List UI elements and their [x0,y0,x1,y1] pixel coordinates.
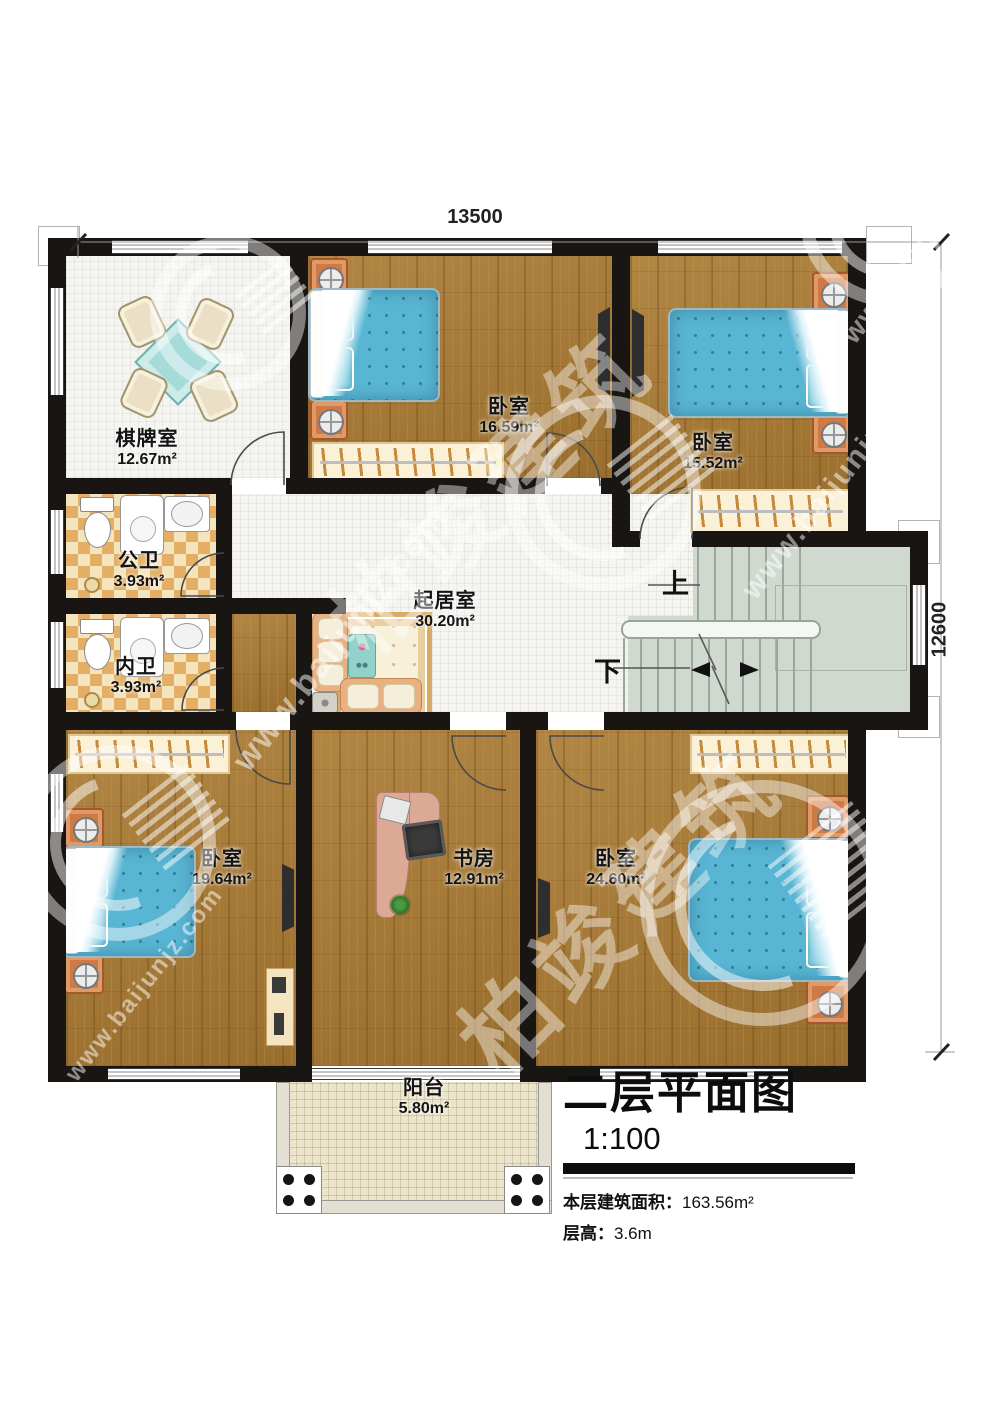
stair-down-label: 下 [594,650,621,689]
title-underline [563,1163,855,1174]
dimension-lines [71,226,955,1060]
floor-plan: 棋牌室12.67m² 卧室16.59m² 卧室15.52m² 公卫3.93m² … [0,0,1000,1416]
stair-up-label: 上 [662,562,689,601]
room-label-private-bath: 内卫3.93m² [71,656,201,697]
room-label-living: 起居室30.20m² [380,590,510,631]
room-label-bedroom-topright: 卧室15.52m² [648,432,778,473]
title-underline-thin [563,1177,853,1179]
dimension-right: 12600 [929,585,952,675]
door-arc [547,433,600,486]
drawing-scale: 1:100 [583,1121,661,1156]
room-label-public-bath: 公卫3.93m² [74,550,204,591]
dimension-top: 13500 [425,206,525,229]
title-block: 二层平面图1:100 本层建筑面积：163.56m² 层高：3.6m [563,1056,893,1244]
stair-direction-symbols [613,585,759,704]
room-label-bedroom-bottomright: 卧室24.60m² [551,848,681,889]
room-label-balcony: 阳台5.80m² [359,1077,489,1118]
door-arc [550,736,604,790]
door-arc [231,432,284,485]
door-arc [640,487,692,539]
floor-area-line: 本层建筑面积：163.56m² [563,1188,893,1213]
room-label-bedroom-top: 卧室16.59m² [444,396,574,437]
door-arc [452,736,506,790]
door-arc [236,730,290,784]
room-label-bedroom-bottomleft: 卧室19.64m² [157,848,287,889]
room-label-study: 书房12.91m² [409,848,539,889]
room-label-chess: 棋牌室12.67m² [82,428,212,469]
page-title: 二层平面图 [563,1067,798,1118]
floor-height-line: 层高：3.6m [563,1219,893,1244]
